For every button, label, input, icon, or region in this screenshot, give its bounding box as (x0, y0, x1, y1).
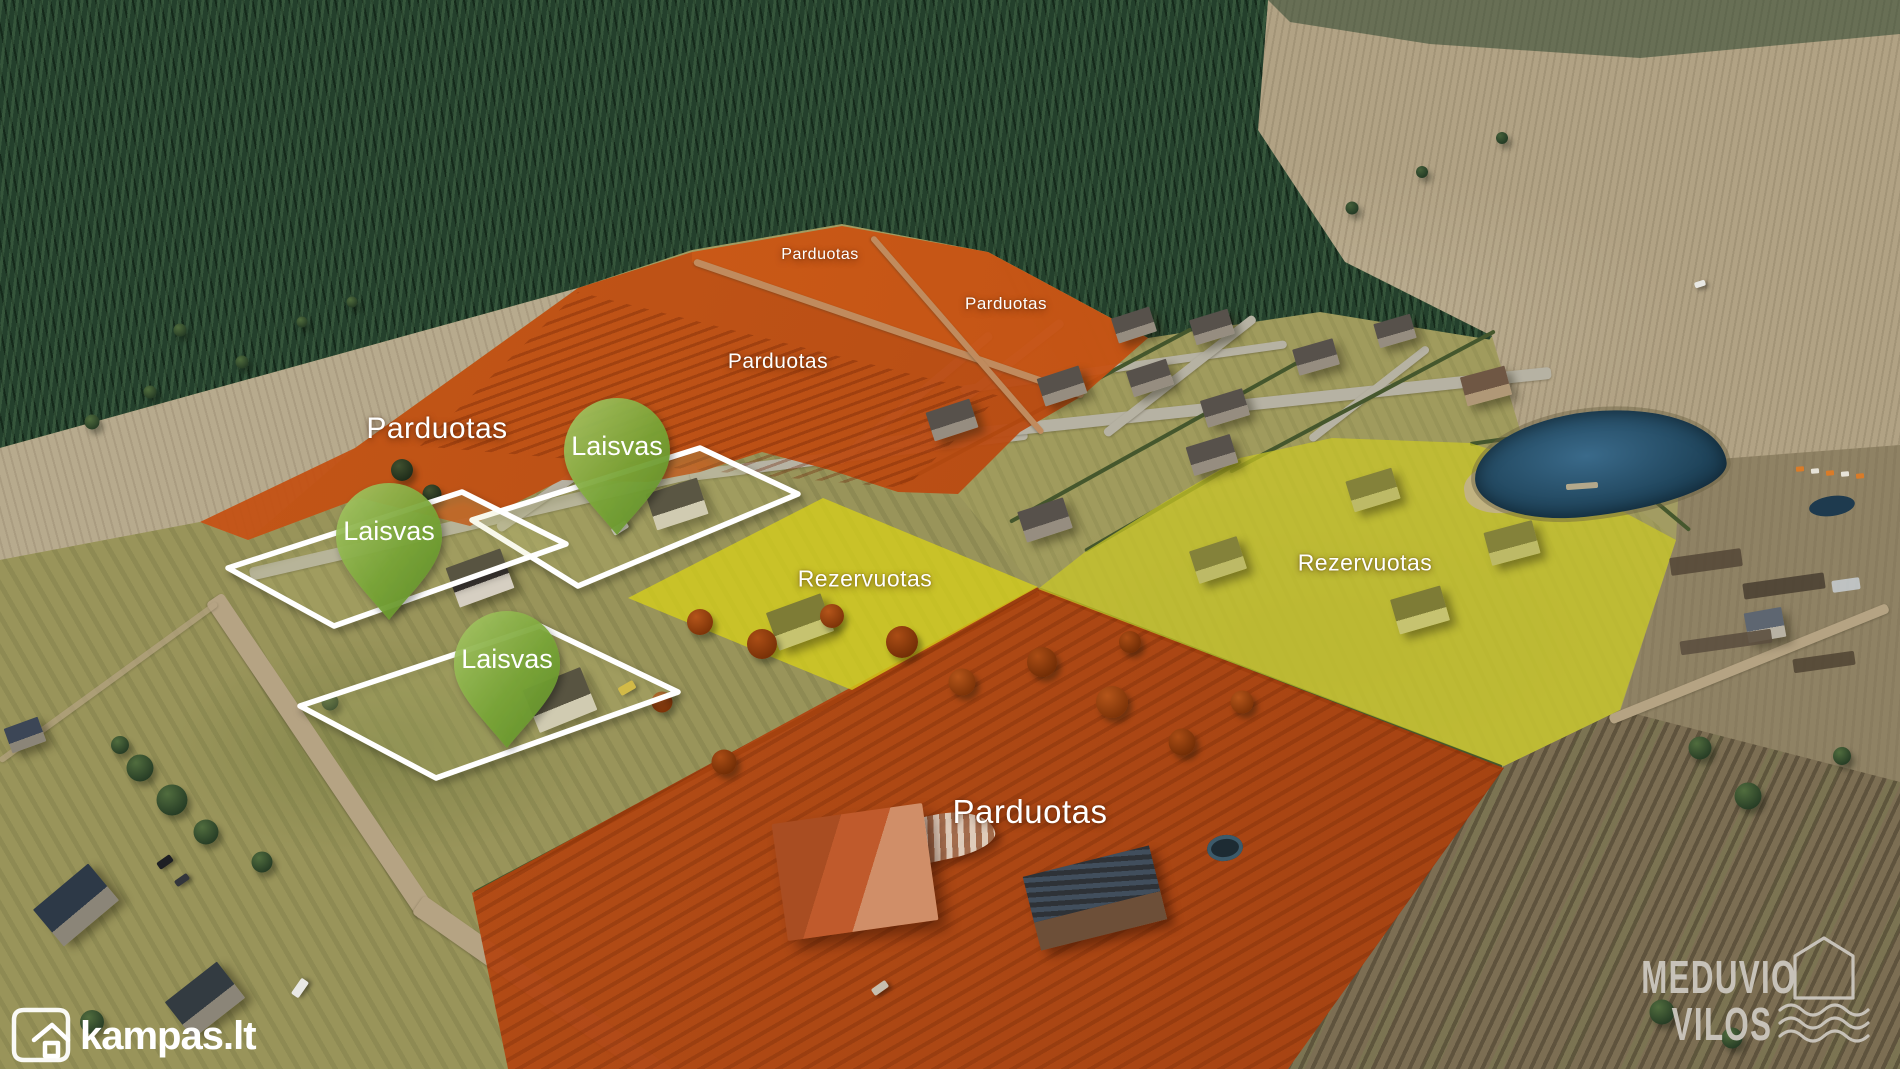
pin-label: Laisvas (571, 431, 663, 461)
kampas-corner-house-icon (14, 1010, 68, 1060)
developer-name-line2: VILOS (1672, 999, 1773, 1050)
water-waves-icon (1780, 1005, 1868, 1015)
aerial-plot-map: Parduotas Parduotas Parduotas Parduotas … (0, 0, 1900, 1069)
house-outline-icon (1795, 938, 1853, 998)
water-waves-icon (1780, 1031, 1868, 1041)
kampas-logo[interactable]: kampas.lt (14, 1010, 256, 1060)
pin-label: Laisvas (461, 644, 553, 674)
vector-overlay: Laisvas Laisvas Laisvas kampas.lt MEDUVI… (0, 0, 1900, 1069)
kampas-logo-text: kampas.lt (80, 1014, 256, 1058)
developer-name-line1: MEDUVIO (1641, 952, 1796, 1003)
pin-label: Laisvas (343, 516, 435, 546)
developer-logo: MEDUVIO VILOS (1641, 938, 1868, 1051)
water-waves-icon (1780, 1018, 1868, 1028)
